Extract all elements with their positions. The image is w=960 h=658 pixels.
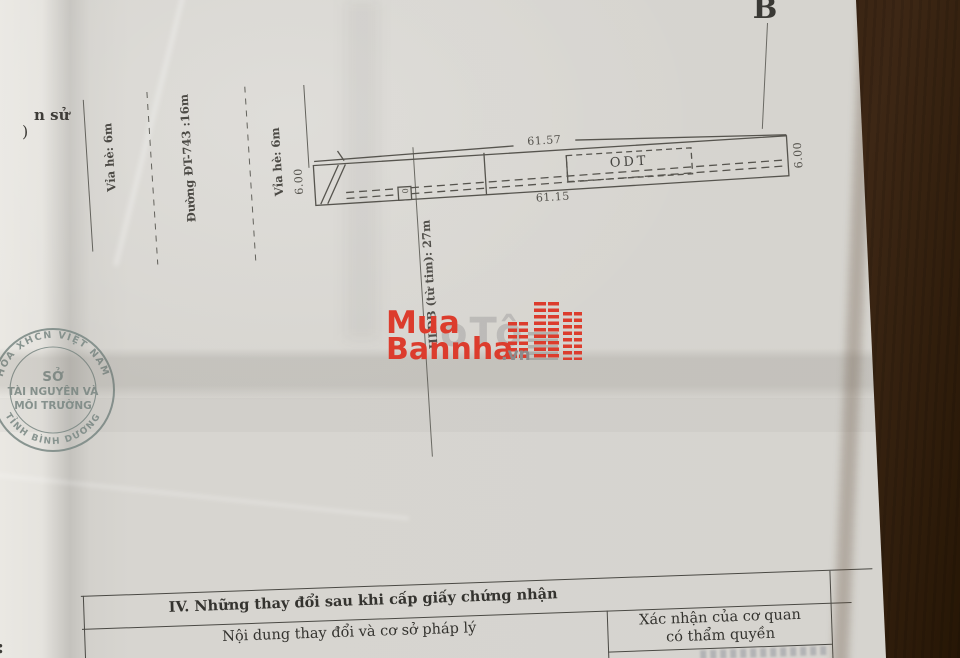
photographed-land-document: n sử ) : HÒA XHCN VIỆT NAM TỈNH BÌNH DƯƠ…	[0, 0, 960, 658]
alley-width-marker: 0	[401, 188, 410, 194]
watermark-building-icon	[563, 312, 572, 360]
watermark-domain-suffix: .vn	[501, 345, 531, 365]
road-name-label: Đường ĐT-743 :16m	[177, 102, 199, 223]
column-header-change-content: Nội dung thay đổi và cơ sở pháp lý	[139, 617, 559, 648]
photo-shadow-band	[0, 398, 960, 432]
watermark-building-icon	[548, 302, 559, 360]
parcel-width-dimension-right: 6.00	[790, 135, 804, 176]
land-parcel-drawing: 0 61.57 61.15 6.00 ODT	[307, 118, 795, 234]
sidewalk-right-label: Vỉa hè: 6m	[267, 116, 287, 207]
parcel-width-dimension-left: 6.00	[291, 161, 305, 202]
watermark-word-2: Bannha	[386, 335, 513, 365]
property-boundary-line	[83, 100, 94, 252]
table-left-border	[83, 596, 87, 658]
section-marker-b: B	[748, 0, 782, 25]
cutoff-text-fragment: :	[0, 636, 4, 658]
road-edge-dashed-line	[244, 87, 256, 262]
cadastral-site-plan: Vỉa hè: 6m Đường ĐT-743 :16m Vỉa hè: 6m …	[60, 23, 915, 504]
road-edge-dashed-line	[146, 92, 158, 265]
watermark-building-icon	[574, 312, 582, 360]
watermark-building-icon	[534, 302, 546, 360]
cutoff-text-fragment: )	[22, 122, 28, 141]
table-section-title: IV. Những thay đổi sau khi cấp giấy chứn…	[153, 585, 573, 617]
sidewalk-left-label: Vỉa hè: 6m	[100, 112, 120, 203]
